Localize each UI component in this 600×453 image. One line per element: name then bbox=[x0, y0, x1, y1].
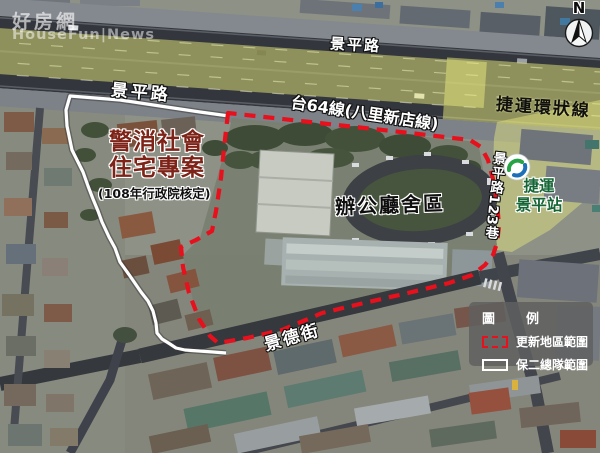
housing-project-title-line1: 警消社會 bbox=[106, 129, 208, 155]
legend-item-update-area: 更新地區範圍 bbox=[482, 333, 593, 350]
metro-station-label: 捷運 景平站 bbox=[509, 177, 569, 215]
watermark: 好房網 HouseFun|News bbox=[12, 13, 155, 43]
legend-title: 圖 例 bbox=[482, 308, 593, 327]
road-label-jingping-east: 景平路 bbox=[329, 33, 381, 57]
road-label-jingping-west: 景平路 bbox=[110, 75, 172, 105]
legend: 圖 例 更新地區範圍 保二總隊範圍 bbox=[469, 302, 593, 366]
red-dashed-symbol bbox=[482, 336, 508, 348]
watermark-brand-en: HouseFun|News bbox=[12, 28, 155, 43]
legend-item-label: 保二總隊範圍 bbox=[516, 356, 588, 373]
white-solid-symbol bbox=[482, 359, 508, 371]
compass-north-label: N bbox=[560, 1, 598, 16]
metro-station-line2: 景平站 bbox=[509, 196, 569, 215]
housing-project-subtitle: (108年行政院核定) bbox=[98, 183, 208, 202]
metro-station-line1: 捷運 bbox=[509, 177, 569, 196]
satellite-basemap bbox=[0, 0, 600, 453]
legend-item-label: 更新地區範圍 bbox=[516, 333, 588, 350]
compass: N bbox=[560, 1, 598, 50]
office-area-label: 辦公廳舍區 bbox=[335, 187, 446, 220]
news-map-image: 景平路 景平路 台64線(八里新店線) 捷運環狀線 景德街 景平路123巷 警消… bbox=[0, 0, 600, 453]
north-arrow-icon bbox=[562, 16, 596, 50]
housing-project-title-line2: 住宅專案 bbox=[106, 155, 208, 181]
housing-project-label: 警消社會 住宅專案 (108年行政院核定) bbox=[106, 129, 208, 202]
legend-item-police-area: 保二總隊範圍 bbox=[482, 356, 593, 373]
